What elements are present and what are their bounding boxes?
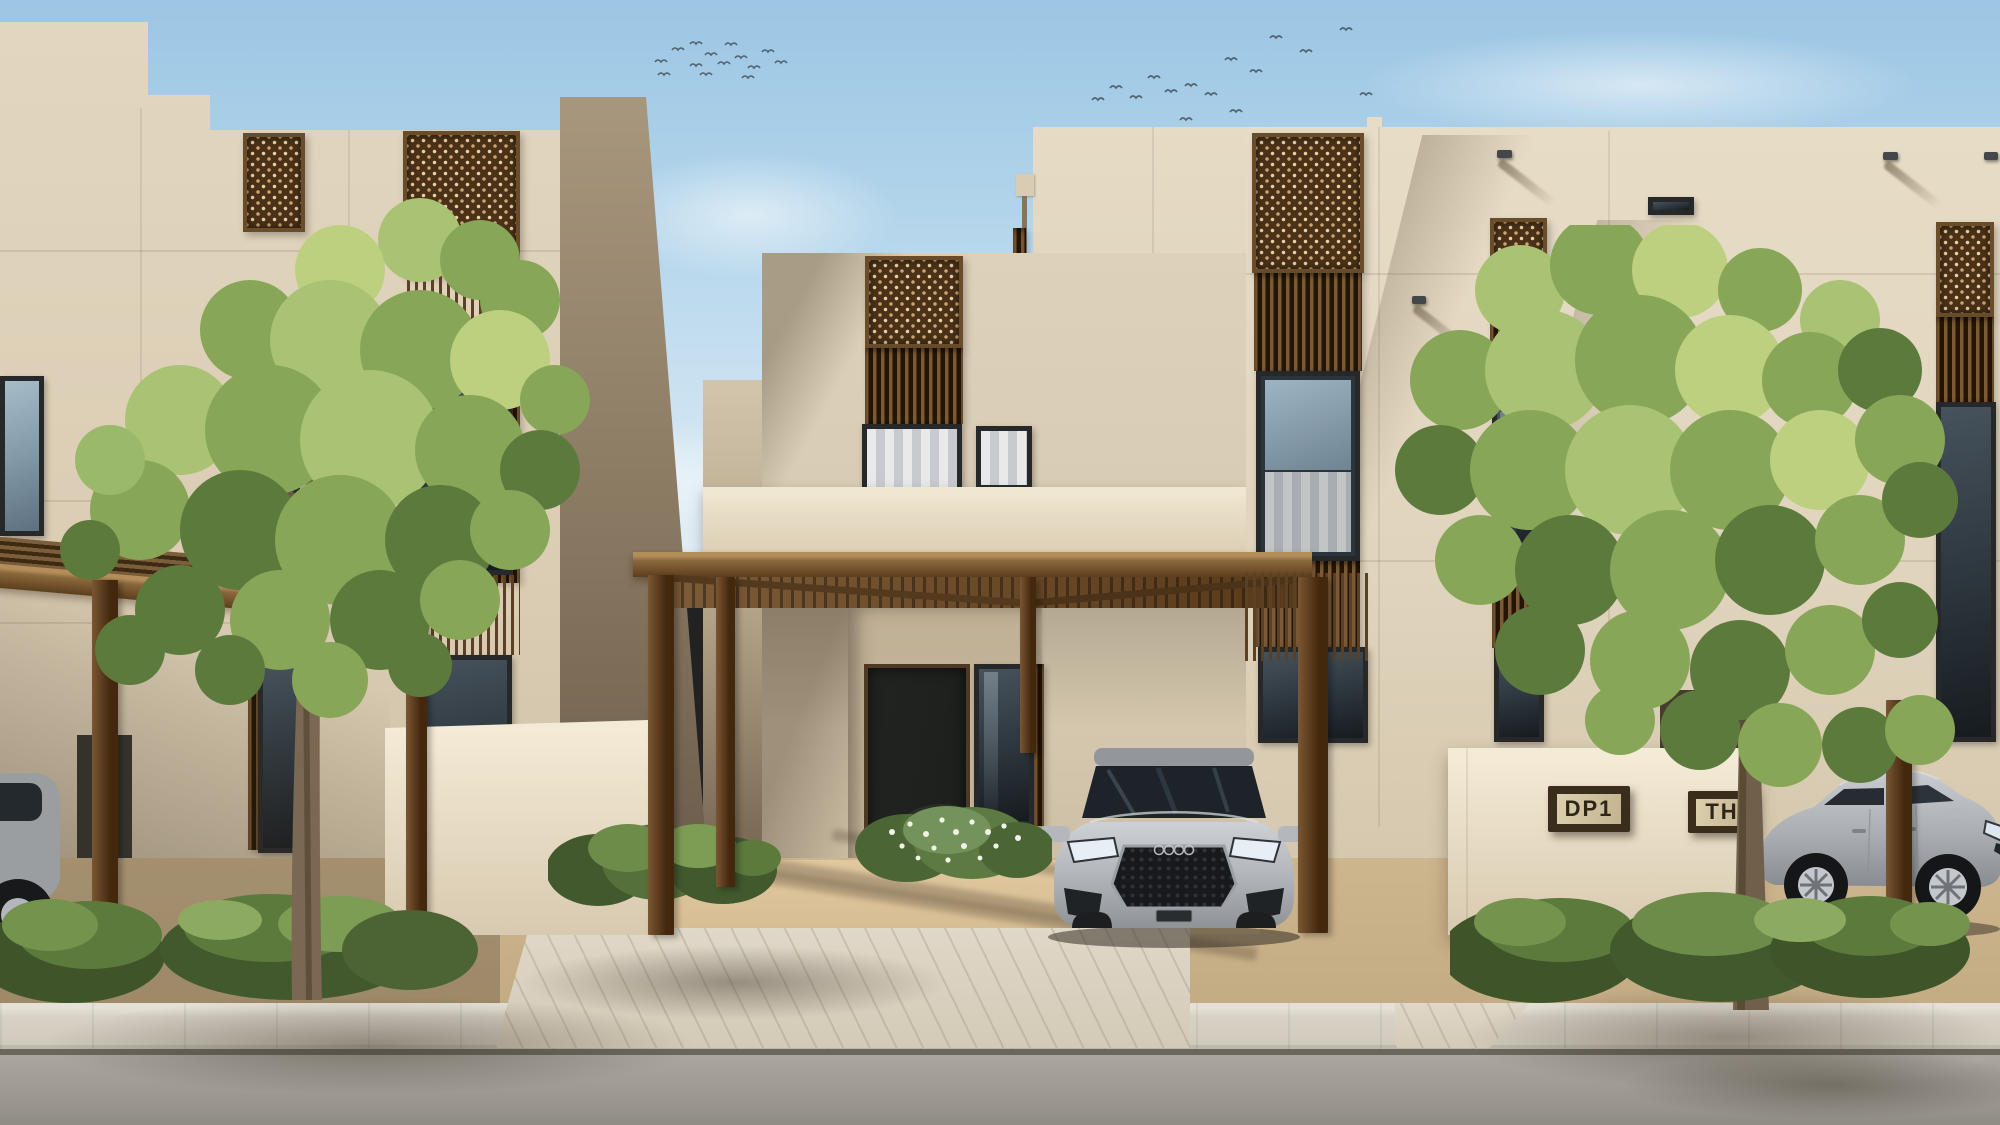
bird-flock <box>640 35 800 95</box>
wall-light <box>1883 152 1898 160</box>
mashrabiya-lattice-panel <box>1252 133 1364 273</box>
flowering-bush <box>852 788 1052 888</box>
foliage <box>1395 225 1958 787</box>
curtain <box>1265 472 1351 552</box>
car-mirror <box>1948 809 1964 818</box>
tree-shadow <box>1620 1050 2000 1120</box>
slat-band <box>865 348 963 424</box>
glass-reflection <box>1265 380 1351 470</box>
carport-post <box>716 577 735 887</box>
cloud <box>1360 30 1920 140</box>
car-grille <box>1112 846 1236 908</box>
carport-post-rear <box>1020 577 1036 753</box>
window-curtained <box>976 426 1032 490</box>
roof-vent <box>1016 174 1034 196</box>
slat-band <box>1254 273 1362 371</box>
foliage <box>60 198 590 718</box>
balcony-parapet <box>703 487 1246 556</box>
carport-post <box>648 575 674 935</box>
car-roof <box>1094 748 1254 766</box>
pergola-rafters <box>633 550 1323 620</box>
parked-car-center <box>1038 738 1310 950</box>
bush-row-right <box>1450 878 1970 1018</box>
mashrabiya-lattice-panel <box>865 256 963 348</box>
tree-left <box>0 180 600 1010</box>
wall-light <box>1497 150 1512 158</box>
carport-post <box>1298 577 1328 933</box>
window-tall <box>1256 371 1360 561</box>
window-slot <box>1648 197 1694 215</box>
street-elevation-render: DP1 TH <box>0 0 2000 1125</box>
tree-canopy-right <box>1395 225 1970 800</box>
wall-light <box>1984 152 1998 160</box>
facade-joint <box>1152 127 1154 257</box>
bird-flock <box>1080 20 1380 140</box>
window-curtained <box>862 424 962 492</box>
